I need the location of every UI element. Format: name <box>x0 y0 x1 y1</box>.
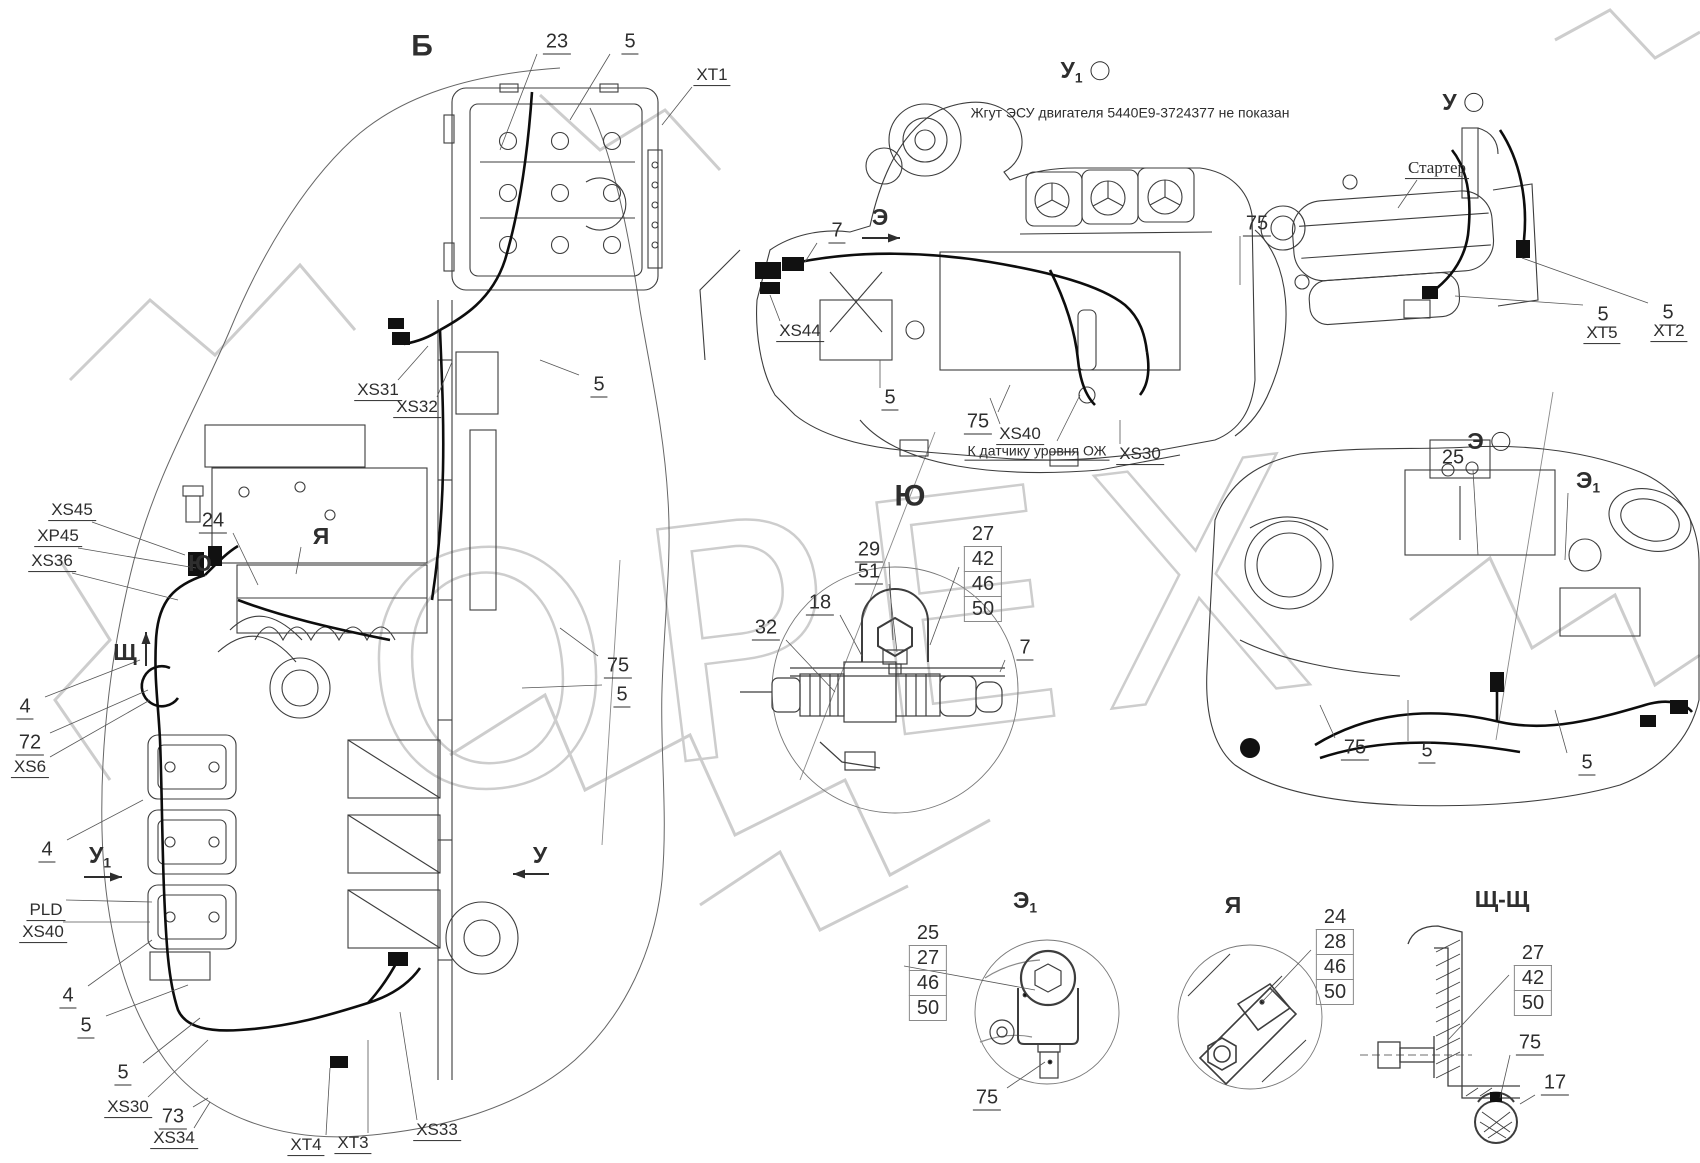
stack-item: 46 <box>964 571 1002 597</box>
callout-xt5: XT5 <box>1583 324 1620 344</box>
callout-text: У <box>533 842 547 868</box>
callout-text: 17 <box>1544 1072 1566 1094</box>
callout-75: 75 <box>1516 1033 1544 1056</box>
callout-text: 5 <box>624 31 635 53</box>
callout-text: 23 <box>546 31 568 53</box>
callout-text: 75 <box>1344 737 1366 759</box>
callout-text: 7 <box>1019 637 1030 659</box>
callout-text: 5 <box>593 374 604 396</box>
callout-text: XS32 <box>396 397 438 416</box>
callout-text: Б <box>411 29 433 62</box>
callout-5: 5 <box>590 375 607 398</box>
callout-7: 7 <box>828 221 845 244</box>
callout-5: 5 <box>77 1016 94 1039</box>
callout-text: У <box>1442 89 1456 115</box>
callout-73: 73 <box>159 1107 187 1130</box>
callout-5: 5 <box>881 388 898 411</box>
callout-29: 29 <box>855 540 883 563</box>
callout-э: Э <box>872 205 888 229</box>
callout-5: 5 <box>1418 741 1435 764</box>
callout-xs30: XS30 <box>104 1098 152 1118</box>
callout-э1: Э1 <box>1576 468 1600 496</box>
callout-text: XT2 <box>1653 321 1684 340</box>
callout-э1: Э1 <box>1013 888 1037 916</box>
callout-text: XT4 <box>290 1135 321 1154</box>
callout-5: 5 <box>1578 753 1595 776</box>
callout-24: 24 <box>199 511 227 534</box>
callout-text: Э <box>1013 887 1029 913</box>
stack-item: 27 <box>1514 941 1552 966</box>
callout-text: XS6 <box>14 757 46 776</box>
callout-text: 5 <box>884 387 895 409</box>
callout-у1: У1 <box>1061 58 1110 86</box>
callout-xs33: XS33 <box>413 1121 461 1141</box>
view-circle-icon <box>1492 432 1511 451</box>
callout-4: 4 <box>59 986 76 1009</box>
callout-text: 24 <box>202 510 224 532</box>
callout-xt4: XT4 <box>287 1136 324 1156</box>
callout-23: 23 <box>543 32 571 55</box>
callout-у1: У1 <box>89 843 111 871</box>
callout-text: У <box>1061 57 1075 83</box>
callout-51: 51 <box>855 562 883 585</box>
callout-xs6: XS6 <box>11 758 49 778</box>
callout-text: Щ <box>113 639 136 665</box>
callout-stack: 25274650 <box>909 922 947 1021</box>
callout-text: XS30 <box>107 1097 149 1116</box>
callout-text: 32 <box>755 617 777 639</box>
callout-text: Я <box>313 523 330 549</box>
drawing-canvas: ОРЕХ <box>0 0 1700 1163</box>
callout-text: XS36 <box>31 551 73 570</box>
callout-я: Я <box>1225 893 1242 917</box>
callout-xt2: XT2 <box>1650 322 1687 342</box>
callout-text: 4 <box>41 839 52 861</box>
callout-xs34: XS34 <box>150 1129 198 1149</box>
callout-4: 4 <box>38 840 55 863</box>
callout-text: 4 <box>19 696 30 718</box>
callout-75: 75 <box>604 656 632 679</box>
stack-item: 42 <box>964 546 1002 572</box>
callout-text: 5 <box>80 1015 91 1037</box>
callout-text: XT1 <box>696 65 727 84</box>
callout-text: Жгут ЭСУ двигателя 5440Е9-3724377 не пок… <box>971 105 1290 121</box>
callout-text: Э <box>1576 467 1592 493</box>
callout-text: Ю <box>188 550 212 576</box>
callout-xp45: XP45 <box>34 527 82 547</box>
callout-text: Я <box>1225 892 1242 918</box>
callout-xs45: XS45 <box>48 501 96 521</box>
callout-text: XS45 <box>51 500 93 519</box>
callout-text: XS40 <box>999 424 1041 443</box>
stack-item: 50 <box>1514 990 1552 1016</box>
callout-text: 75 <box>967 411 989 433</box>
stack-item: 50 <box>909 995 947 1021</box>
callout-text: 25 <box>1442 447 1464 469</box>
callout-text: 4 <box>62 985 73 1007</box>
callout-text: 73 <box>162 1106 184 1128</box>
callout-7: 7 <box>1016 638 1033 661</box>
callout-subscript: 1 <box>1029 900 1037 915</box>
callout-text: 5 <box>616 684 627 706</box>
callout-ю: Ю <box>895 480 926 512</box>
callout-subscript: 1 <box>103 855 111 870</box>
callout-xs32: XS32 <box>393 398 441 418</box>
callout-75: 75 <box>964 412 992 435</box>
callout-щ: Щ <box>113 640 136 664</box>
callout-xs36: XS36 <box>28 552 76 572</box>
callout-text: 5 <box>1421 740 1432 762</box>
stack-item: 27 <box>909 945 947 971</box>
stack-item: 25 <box>909 921 947 946</box>
callout-subscript: 1 <box>1075 70 1083 85</box>
callout-щ-щ: Щ-Щ <box>1475 887 1530 911</box>
callout-xs30: XS30 <box>1116 445 1164 465</box>
view-circle-icon <box>1091 61 1110 80</box>
callout-stack: 27424650 <box>964 523 1002 622</box>
callout-4: 4 <box>16 697 33 720</box>
callout-text: Ю <box>895 479 926 512</box>
stack-item: 46 <box>909 970 947 996</box>
callout-75: 75 <box>1243 214 1271 237</box>
callout-text: 75 <box>607 655 629 677</box>
callout-у: У <box>533 843 547 867</box>
callout-text: XT3 <box>337 1133 368 1152</box>
callout-э: Э <box>1467 429 1510 453</box>
callout-к-датчику-уровня-ож: К датчику уровня ОЖ <box>965 444 1110 461</box>
callout-text: XT5 <box>1586 323 1617 342</box>
stack-item: 50 <box>1316 979 1354 1005</box>
callout-5: 5 <box>613 685 630 708</box>
stack-item: 42 <box>1514 965 1552 991</box>
callout-у: У <box>1442 90 1483 114</box>
callout-text: PLD <box>29 900 62 919</box>
callout-xt1: XT1 <box>693 66 730 86</box>
callout-stack: 274250 <box>1514 942 1552 1016</box>
callout-layer: Б235XT1XS31XS325XS45XP45XS3624ЯЮЩ472XS64… <box>0 0 1700 1163</box>
callout-xs44: XS44 <box>776 322 824 342</box>
callout-text: XS40 <box>22 922 64 941</box>
callout-text: XS34 <box>153 1128 195 1147</box>
callout-text: 51 <box>858 561 880 583</box>
callout-я: Я <box>313 524 330 548</box>
callout-text: 72 <box>19 732 41 754</box>
callout-5: 5 <box>621 32 638 55</box>
callout-text: 29 <box>858 539 880 561</box>
callout-17: 17 <box>1541 1073 1569 1096</box>
callout-text: XS30 <box>1119 444 1161 463</box>
callout-text: XS31 <box>357 380 399 399</box>
stack-item: 46 <box>1316 954 1354 980</box>
callout-text: 5 <box>1581 752 1592 774</box>
callout-text: 7 <box>831 220 842 242</box>
callout-text: К датчику уровня ОЖ <box>968 443 1107 459</box>
callout-text: 75 <box>1519 1032 1541 1054</box>
callout-text: Э <box>1467 428 1483 454</box>
callout-text: 75 <box>976 1087 998 1109</box>
callout-32: 32 <box>752 618 780 641</box>
callout-pld: PLD <box>26 901 65 921</box>
callout-72: 72 <box>16 733 44 756</box>
callout-жгут-эсу-двигателя-5440е9-3724377-не-показан: Жгут ЭСУ двигателя 5440Е9-3724377 не пок… <box>971 106 1290 121</box>
callout-text: Щ-Щ <box>1475 886 1530 912</box>
callout-б: Б <box>411 30 433 62</box>
callout-стартер: Стартер <box>1405 159 1469 179</box>
callout-ю: Ю <box>188 551 212 575</box>
callout-text: Стартер <box>1408 158 1466 177</box>
stack-item: 24 <box>1316 905 1354 930</box>
callout-18: 18 <box>806 593 834 616</box>
callout-75: 75 <box>973 1088 1001 1111</box>
callout-75: 75 <box>1341 738 1369 761</box>
stack-item: 28 <box>1316 929 1354 955</box>
stack-item: 27 <box>964 522 1002 547</box>
callout-text: 18 <box>809 592 831 614</box>
callout-text: XP45 <box>37 526 79 545</box>
callout-text: XS33 <box>416 1120 458 1139</box>
callout-text: XS44 <box>779 321 821 340</box>
callout-text: Э <box>872 204 888 230</box>
callout-xt3: XT3 <box>334 1134 371 1154</box>
view-circle-icon <box>1465 93 1484 112</box>
callout-text: 75 <box>1246 213 1268 235</box>
callout-subscript: 1 <box>1592 480 1600 495</box>
callout-text: У <box>89 842 103 868</box>
callout-stack: 24284650 <box>1316 906 1354 1005</box>
callout-5: 5 <box>114 1063 131 1086</box>
stack-item: 50 <box>964 596 1002 622</box>
callout-text: 5 <box>117 1062 128 1084</box>
callout-xs40: XS40 <box>19 923 67 943</box>
callout-25: 25 <box>1439 448 1467 471</box>
